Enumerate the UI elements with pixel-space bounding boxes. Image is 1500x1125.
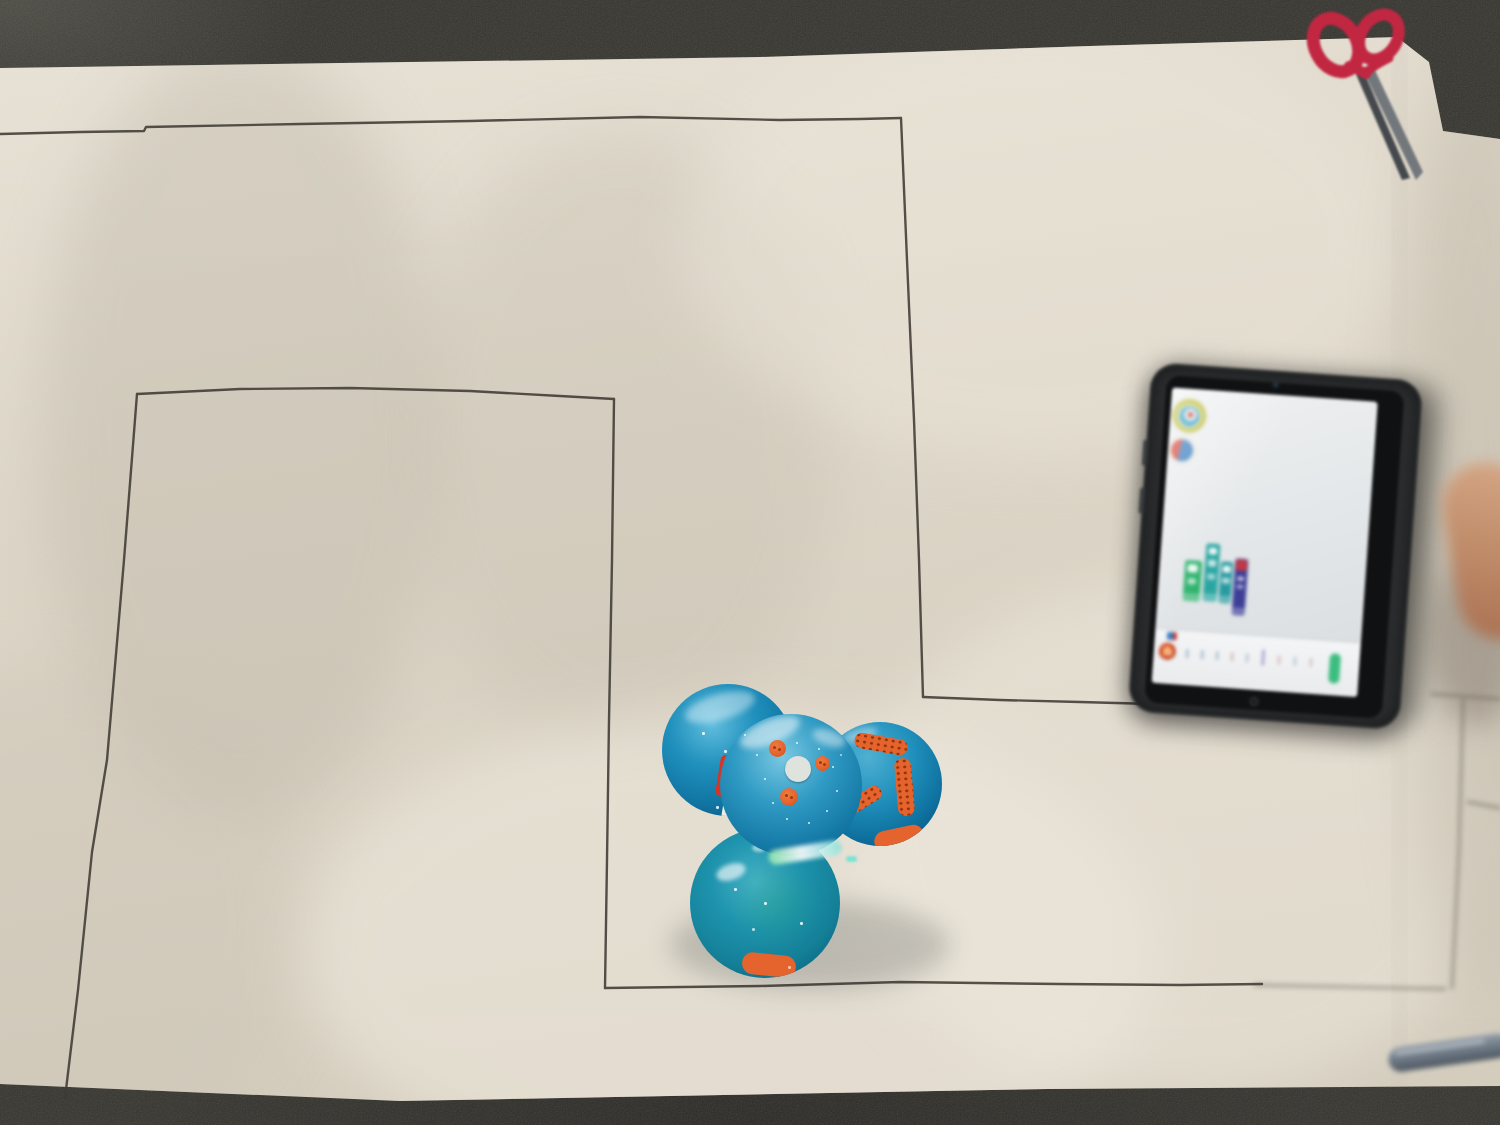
secondary-avatar-icon [1167, 435, 1197, 465]
coding-app-screen [1152, 387, 1378, 697]
scissors-handles [1304, 7, 1407, 79]
scissors-blades [1355, 64, 1423, 180]
palette-tick [1261, 649, 1265, 665]
robot-head-sphere [720, 714, 862, 856]
record-chart-icon [1158, 642, 1176, 660]
robot-speaker-vent [894, 757, 916, 816]
code-block-teal-tall [1202, 543, 1220, 602]
specular-highlight [682, 685, 758, 730]
palette-tick [1245, 653, 1249, 662]
palette-tick [1309, 658, 1313, 667]
palette-tick [1293, 657, 1297, 666]
code-block-green [1182, 560, 1202, 602]
plus-icon [1167, 632, 1178, 641]
red-cap [1236, 559, 1248, 571]
robot-orange-patch [741, 951, 797, 978]
palette-tick [1185, 649, 1189, 658]
sparkle [702, 732, 705, 735]
code-block-indigo [1232, 558, 1249, 616]
go-button [1328, 653, 1341, 684]
cyan-glint [846, 856, 857, 862]
tablet-screen [1152, 387, 1378, 697]
palette-tick [1215, 651, 1219, 660]
robot-speaker-vent [853, 731, 909, 756]
specular-highlight [810, 725, 847, 751]
sparkle-ring [756, 754, 758, 756]
robot-head-button-orange [780, 788, 798, 806]
dash-avatar-icon [1171, 398, 1207, 434]
photo-scene [0, 0, 1500, 1125]
robot-head-button-white [785, 756, 811, 782]
code-block-teal-short [1218, 561, 1233, 604]
dash-robot [650, 660, 980, 1005]
palette-tick [1230, 652, 1234, 661]
sparkle [734, 888, 737, 891]
robot-head-button-orange [769, 740, 786, 757]
robot-orange-patch [872, 823, 925, 846]
palette-tick [1200, 650, 1204, 659]
robot-head-button-orange [815, 756, 830, 771]
palette-tick [1277, 655, 1281, 664]
tablet [1128, 362, 1424, 730]
